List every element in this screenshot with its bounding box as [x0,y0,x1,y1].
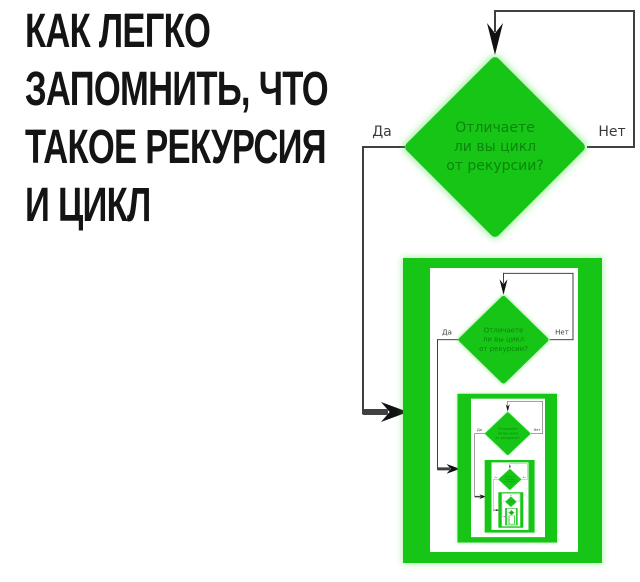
page-title: КАК ЛЕГКО ЗАПОМНИТЬ, ЧТО ТАКОЕ РЕКУРСИЯ … [25,3,335,235]
yes-label: Да [474,428,485,432]
recursion-frame-inner: Отличаете ли вы цикл от рекурсии? Да Нет… [492,462,529,530]
recursion-frame-inner: Отличаете ли вы цикл от рекурсии? Да Нет… [502,493,521,526]
recursion-frame [509,516,515,524]
yes-label: Да [493,477,499,479]
flowchart-level: Отличаете ли вы цикл от рекурсии? Да Нет… [502,493,520,526]
decision-question-line: от рекурсии? [488,436,528,441]
decision-question-line: Отличаете [464,326,544,335]
title-line: КАК ЛЕГКО [25,3,335,61]
connector-yes-line [437,339,459,340]
recursion-frame-inner: Отличаете ли вы цикл от рекурсии? Да Нет… [471,399,545,537]
recursion-frame-inner: Отличаете ли вы цикл от рекурсии? Да Нет… [430,268,578,552]
connector-no-line [550,339,574,340]
flowchart-level: Отличаете ли вы цикл от рекурсии? Да Нет… [431,268,576,552]
recursion-frame-inner: Отличаете ли вы цикл от рекурсии? Да Нет [507,509,516,525]
no-label: Нет [532,428,543,432]
recursion-frame-inner [509,516,514,524]
connector-yes-down-line [437,339,438,470]
no-label: Нет [590,124,634,140]
flowchart-level: Отличаете ли вы цикл от рекурсии? Да Нет… [350,0,640,582]
connector-yes-down-line [475,433,476,497]
no-label: Нет [517,500,520,501]
connector-yes-tail-line [475,496,482,497]
connector-yes-line [362,146,405,148]
connector-yes-down-line [362,146,364,414]
flowchart-level: Отличаете ли вы цикл от рекурсии? Да Нет… [492,462,528,529]
decision-question: Отличаете ли вы цикл от рекурсии? [500,476,520,483]
decision-question-line: от рекурсии? [506,502,516,503]
connector-yes-tail-line [493,510,496,511]
decision-question-line: ли вы цикл [464,335,544,344]
yes-label: Да [503,500,506,501]
decision-question: Отличаете ли вы цикл от рекурсии? [509,512,514,514]
decision-question-line: от рекурсии? [415,157,575,176]
decision-question: Отличаете ли вы цикл от рекурсии? [415,119,575,176]
recursion-frame: Отличаете ли вы цикл от рекурсии? Да Нет… [498,492,523,527]
connector-entry-line [494,10,496,32]
decision-question-line: от рекурсии? [464,345,544,354]
title-line: ЗАПОМНИТЬ, ЧТО [25,61,335,119]
flowchart-root: Отличаете ли вы цикл от рекурсии? Да Нет… [350,0,640,582]
connector-no-line [587,146,635,148]
connector-yes-tail-line [437,467,450,470]
recursion-frame: Отличаете ли вы цикл от рекурсии? Да Нет… [403,258,602,563]
yes-label: Да [360,124,404,140]
connector-entry-line [503,273,504,284]
recursion-frame: Отличаете ли вы цикл от рекурсии? Да Нет… [458,394,558,543]
decision-question-line: ли вы цикл [415,138,575,157]
flowchart-level: Отличаете ли вы цикл от рекурсии? Да Нет… [472,399,545,537]
decision-question-line: от рекурсии? [509,513,514,514]
decision-question: Отличаете ли вы цикл от рекурсии? [488,427,528,441]
connector-yes-tail-line [362,409,388,415]
recursion-frame: Отличаете ли вы цикл от рекурсии? Да Нет… [485,460,535,533]
decision-question-line: Отличаете [415,119,575,138]
title-line: И ЦИКЛ [25,177,335,235]
yes-label: Да [436,328,458,336]
decision-question: Отличаете ли вы цикл от рекурсии? [464,326,544,354]
title-line: ТАКОЕ РЕКУРСИЯ [25,119,335,177]
connector-entry-line [508,401,509,406]
connector-loop-top-line [503,273,574,274]
no-label: Нет [522,477,528,479]
recursion-frame: Отличаете ли вы цикл от рекурсии? Да Нет [505,508,517,525]
connector-loop-top-line [494,10,635,12]
no-label: Нет [551,328,573,336]
decision-question: Отличаете ли вы цикл от рекурсии? [506,500,516,503]
flowchart-level: Отличаете ли вы цикл от рекурсии? Да Нет [507,509,516,525]
decision-question-line: от рекурсии? [500,481,520,483]
